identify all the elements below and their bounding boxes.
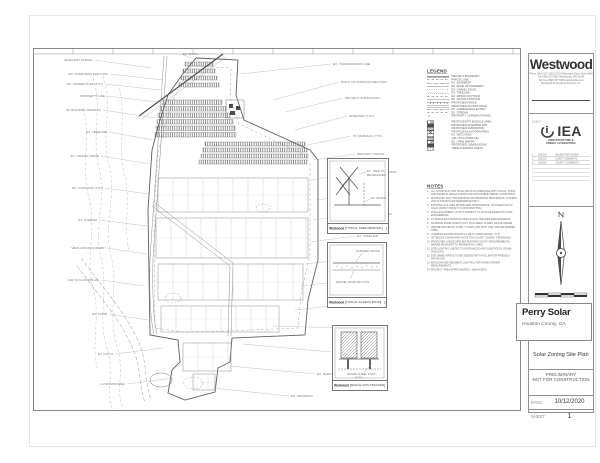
client-label: CLIENT bbox=[532, 121, 541, 124]
detail-tree-removal: EX. TREE TO BE REMOVED EX. GRADE Westwoo… bbox=[327, 158, 389, 234]
detail-title-bar: Westwood TYPICAL TREE REMOVAL 1 bbox=[328, 223, 388, 233]
note-item: 1.ALL CONSTRUCTION SHALL BE IN ACCORDANC… bbox=[427, 190, 517, 196]
detail-access-road: FINISHED GRADE GRAVEL ROAD SECTION Westw… bbox=[327, 242, 387, 308]
note-item: 12.DISTURBED AREAS TO BE SEEDED WITH POL… bbox=[427, 255, 517, 261]
note-item: 13.EROSION AND SEDIMENT CONTROL PER NPDE… bbox=[427, 262, 517, 268]
plan-callout-label: LAYDOWN AREA bbox=[100, 382, 125, 386]
drawing-sheet: EX. OVERHEAD ELECTRICEX. POWER POLE (TYP… bbox=[0, 0, 600, 463]
detail-number: 2 bbox=[380, 301, 386, 305]
legend-symbol bbox=[427, 98, 449, 101]
project-name: Perry Solar bbox=[522, 307, 591, 318]
existing-contours bbox=[83, 76, 129, 410]
note-item: 7.PERIMETER FENCE TO BE 7' CHAIN LINK WI… bbox=[427, 226, 517, 232]
plan-callout-label: ADJACENT PARCEL bbox=[64, 58, 94, 62]
north-letter bbox=[559, 212, 563, 217]
notes-list: 1.ALL CONSTRUCTION SHALL BE IN ACCORDANC… bbox=[427, 190, 517, 272]
legend-symbol bbox=[427, 147, 449, 150]
detail-title: TYPICAL TREE REMOVAL bbox=[346, 227, 382, 230]
legend-symbol bbox=[427, 105, 449, 107]
legend-symbol bbox=[427, 115, 449, 118]
sheet-title: Solar Zoning Site Plan bbox=[533, 352, 593, 358]
legend-title: LEGEND bbox=[427, 69, 447, 75]
revision-table: 110/12/20ISSUED FOR ZONING210/12/20CLIEN… bbox=[532, 153, 590, 181]
plan-callout-label: SECURITY FENCE bbox=[357, 152, 384, 156]
note-item: 9.SETBACKS SHOWN PER HOUSTON COUNTY ZONI… bbox=[427, 237, 517, 240]
sheet-label: SHEET bbox=[529, 414, 546, 419]
note-item: 11.SITE LIGHTING LIMITED TO ENTRANCES AN… bbox=[427, 248, 517, 254]
detail-tracker: DRIVEN STEEL POST (TYP.) Westwood SINGLE… bbox=[332, 325, 388, 391]
wetland-areas bbox=[165, 204, 270, 389]
plan-callout-label: EX. TREELINE bbox=[357, 234, 378, 238]
detail-number: 3 bbox=[384, 384, 387, 388]
note-item: 4.FINAL EQUIPMENT LAYOUT SUBJECT TO CHAN… bbox=[427, 211, 517, 217]
detail-title: SINGLE AXIS TRACKER bbox=[351, 384, 385, 387]
project-block: Perry Solar Houston County, GA bbox=[516, 303, 592, 341]
detail-logo: Westwood bbox=[328, 227, 346, 231]
plan-callout-label: WETLAND BOUNDARY bbox=[72, 246, 105, 250]
legend-symbol bbox=[427, 102, 449, 104]
firm-rule bbox=[532, 100, 590, 101]
title-block: Westwood Phone (952) 937-5150 12701 Whit… bbox=[528, 53, 594, 413]
sheet-row: SHEET 1 bbox=[529, 409, 593, 423]
plan-callout-label: EX. GRAVEL DRIVE bbox=[71, 154, 99, 158]
status-block: PRELIMINARY NOT FOR CONSTRUCTION DATE 10… bbox=[529, 369, 593, 413]
notes-title: NOTES bbox=[427, 184, 444, 190]
sheet-title-block: Solar Zoning Site Plan bbox=[529, 347, 593, 369]
sheet-number: 1 bbox=[546, 413, 593, 420]
plan-callout-label: POINT OF INTERCONNECTION bbox=[341, 80, 387, 84]
client-name: IEA bbox=[557, 123, 581, 139]
detail-title-bar: Westwood SINGLE AXIS TRACKER 3 bbox=[333, 380, 387, 390]
detail-logo: Westwood bbox=[328, 301, 346, 305]
compass-block bbox=[529, 206, 593, 305]
north-arrow-and-scale bbox=[530, 209, 592, 303]
detail-title-bar: Westwood TYPICAL ACCESS ROAD 2 bbox=[328, 297, 386, 307]
project-location: Houston County, GA bbox=[522, 322, 591, 327]
plan-callout-label: EX. TREELINE bbox=[86, 130, 107, 134]
svg-text:EX. GRADE: EX. GRADE bbox=[371, 196, 386, 200]
svg-text:GRAVEL ROAD SECTION: GRAVEL ROAD SECTION bbox=[336, 280, 369, 284]
detail-title: TYPICAL ACCESS ROAD bbox=[346, 301, 381, 304]
plan-callout-label: EX. TRANSMISSION LINE bbox=[333, 62, 370, 66]
access-road-drawing: FINISHED GRADE GRAVEL ROAD SECTION bbox=[328, 243, 385, 297]
plan-callout-label: EX. DITCH bbox=[98, 352, 113, 356]
note-item: 6.MAXIMUM PANEL HEIGHT NOT TO EXCEED 15 … bbox=[427, 222, 517, 225]
existing-pond bbox=[150, 373, 172, 387]
detail-number: 1 bbox=[382, 227, 388, 231]
plan-callout-label: EX. BARN bbox=[317, 372, 331, 376]
note-item: 8.INTERIOR ACCESS ROADS TO BE 16' WIDE G… bbox=[427, 233, 517, 236]
status-line-2: NOT FOR CONSTRUCTION bbox=[529, 377, 593, 382]
plan-callout-label: EX. CONTOUR (TYP.) bbox=[72, 186, 103, 190]
firm-contact-line: Westwood Professional Services, Inc. bbox=[529, 83, 593, 86]
legend-rows: PROJECT BOUNDARYPARCEL LINEEX. EASEMENTE… bbox=[427, 75, 515, 150]
note-item: 10.PROPOSED LANDSCAPE BUFFER PER COUNTY … bbox=[427, 241, 517, 247]
plan-callout-label: EX. OVERHEAD ELECTRIC bbox=[69, 72, 109, 76]
plan-callout-label: EX. POWER POLE (TYP.) bbox=[67, 82, 103, 86]
firm-contact-lines: Phone (952) 937-5150 12701 Whitewater Dr… bbox=[529, 73, 593, 86]
note-item: 3.EXISTING UTILITIES SHOWN ARE APPROXIMA… bbox=[427, 204, 517, 210]
firm-logo: Westwood bbox=[529, 57, 593, 72]
plan-callout-label: INVERTER (TYP.) bbox=[349, 114, 374, 118]
tracker-drawing: DRIVEN STEEL POST (TYP.) bbox=[333, 326, 386, 380]
tree-removal-drawing: EX. TREE TO BE REMOVED EX. GRADE bbox=[328, 159, 387, 223]
svg-text:(TYP.): (TYP.) bbox=[355, 376, 363, 380]
client-logo: IEA bbox=[532, 123, 590, 139]
note-item: 2.BOUNDARY AND TOPOGRAPHIC INFORMATION P… bbox=[427, 197, 517, 203]
plan-callout-label: EX. DRIVEWAY bbox=[291, 394, 313, 398]
legend-label: TREE CLEARING LIMITS bbox=[452, 147, 483, 150]
scale-bar bbox=[535, 293, 587, 297]
plan-callout-label: PROPERTY LINE bbox=[80, 94, 105, 98]
legend-item: TREE CLEARING LIMITS bbox=[427, 147, 515, 150]
date-row: DATE 10/12/2020 bbox=[529, 395, 593, 409]
firm-block: Westwood Phone (952) 937-5150 12701 Whit… bbox=[529, 54, 593, 113]
north-hub-dot bbox=[560, 252, 562, 254]
ruler-ticks bbox=[73, 49, 513, 55]
client-tagline-2: ENERGY ALTERNATIVES bbox=[532, 142, 590, 145]
date-label: DATE bbox=[529, 400, 546, 405]
legend-label: PROPERTY CORNER (FOUND) bbox=[452, 115, 491, 118]
iea-logo-icon bbox=[540, 124, 555, 139]
plan-callout-label: PV MODULES (TYP.) bbox=[353, 134, 383, 138]
plan-callout-label: EX. ROAD bbox=[183, 52, 199, 56]
note-item: 5.PV MODULES SHOWN AS SINGLE AXIS TRACKE… bbox=[427, 218, 517, 221]
plan-callout-label: 100-YR FLOODPLAIN bbox=[68, 278, 99, 282]
plan-callout-label: EX. POND bbox=[92, 312, 108, 316]
plan-callout-label: 50' BUILDING SETBACK bbox=[66, 108, 102, 112]
note-item: 14.PROJECT AREA APPROXIMATELY ±680 ACRES… bbox=[427, 269, 517, 272]
date-value: 10/12/2020 bbox=[546, 399, 593, 405]
plan-callout-label: PROJECT SUBSTATION bbox=[345, 96, 380, 100]
array-blocks bbox=[156, 178, 308, 390]
plan-callout-label: EX. STREAM bbox=[78, 218, 97, 222]
client-block: CLIENT IEA INFRASTRUCTURE & ENERGY ALTER… bbox=[529, 113, 593, 206]
notes: NOTES 1.ALL CONSTRUCTION SHALL BE IN ACC… bbox=[427, 181, 517, 364]
svg-text:FINISHED GRADE: FINISHED GRADE bbox=[356, 249, 380, 253]
svg-text:BE REMOVED: BE REMOVED bbox=[367, 173, 386, 177]
detail-logo: Westwood bbox=[333, 384, 351, 388]
